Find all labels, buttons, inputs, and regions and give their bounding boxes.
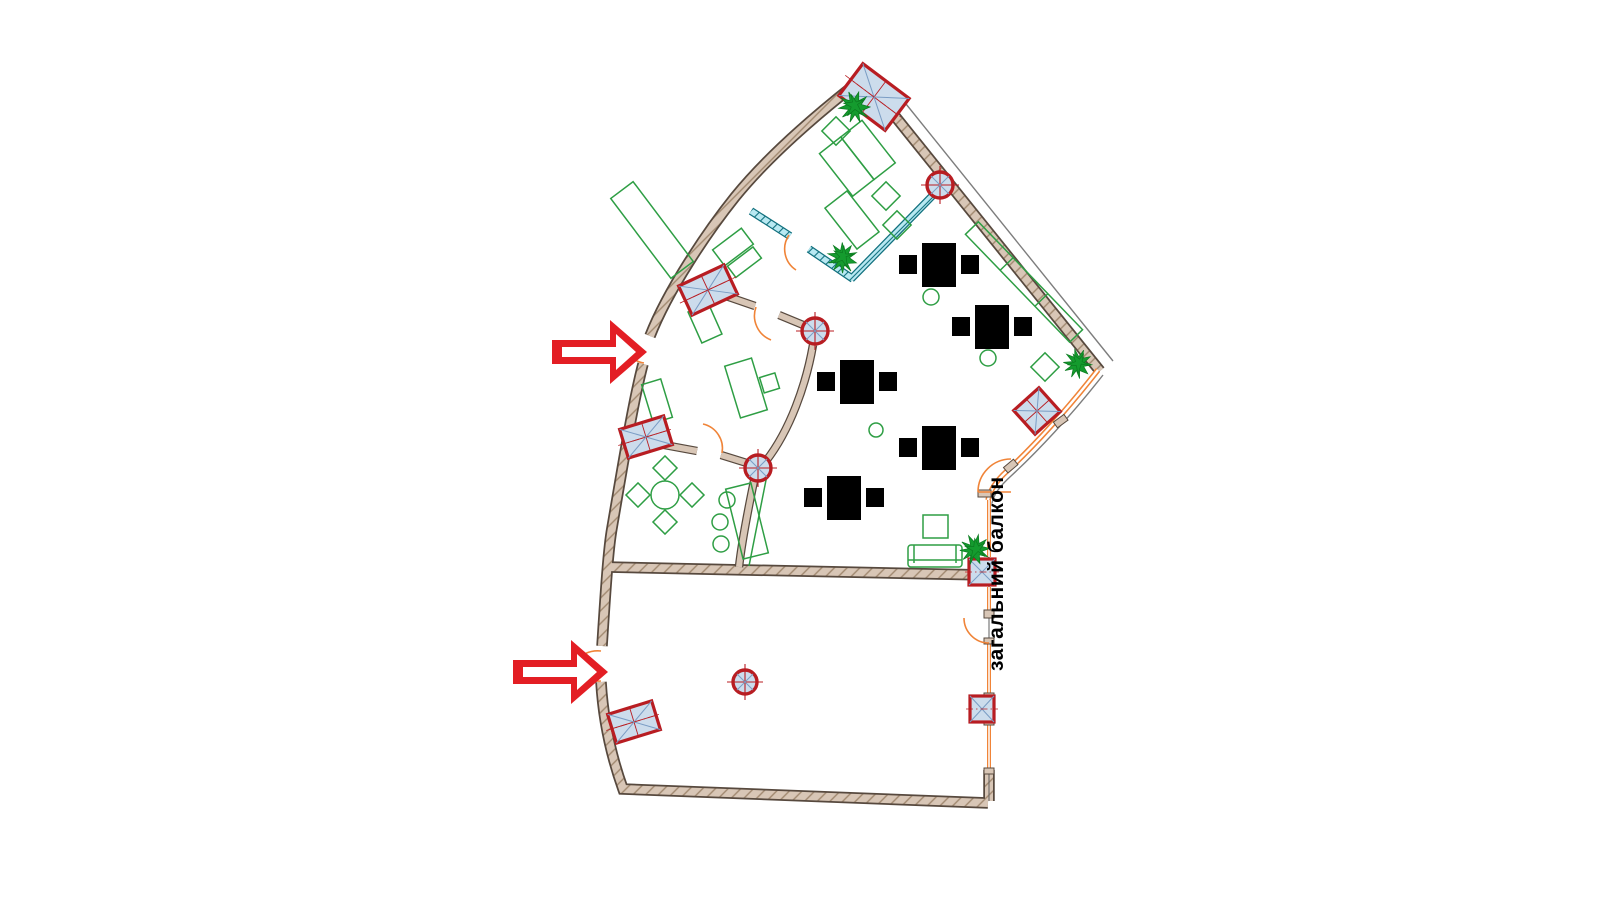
balcony-label: загальний балкон [985,487,1009,671]
desk-group [817,360,897,404]
stool [869,423,883,437]
desk-group [804,476,884,520]
furniture [611,117,1083,567]
entrance-arrow-upper [552,320,647,384]
shaft-column [966,696,998,722]
stool [712,514,728,530]
wardrobe [611,182,694,279]
stool [980,350,996,366]
chair-diamond [1031,353,1059,381]
desk-group [899,426,979,470]
chair-diamond [872,182,900,210]
round-column [727,664,763,700]
stool [713,536,729,552]
round-column [796,312,834,350]
entrance-arrow-lower [513,640,608,704]
sofa [908,545,962,567]
round-table-set [626,456,704,534]
desk-rotated [825,191,879,249]
floorplan-svg [0,0,1600,900]
desk-with-chair [725,353,785,418]
stool [923,289,939,305]
desk-group [899,243,979,287]
floorplan-canvas: загальний балкон [0,0,1600,900]
interior-walls [659,295,813,567]
desk-group [952,305,1032,349]
side-table [923,515,948,538]
